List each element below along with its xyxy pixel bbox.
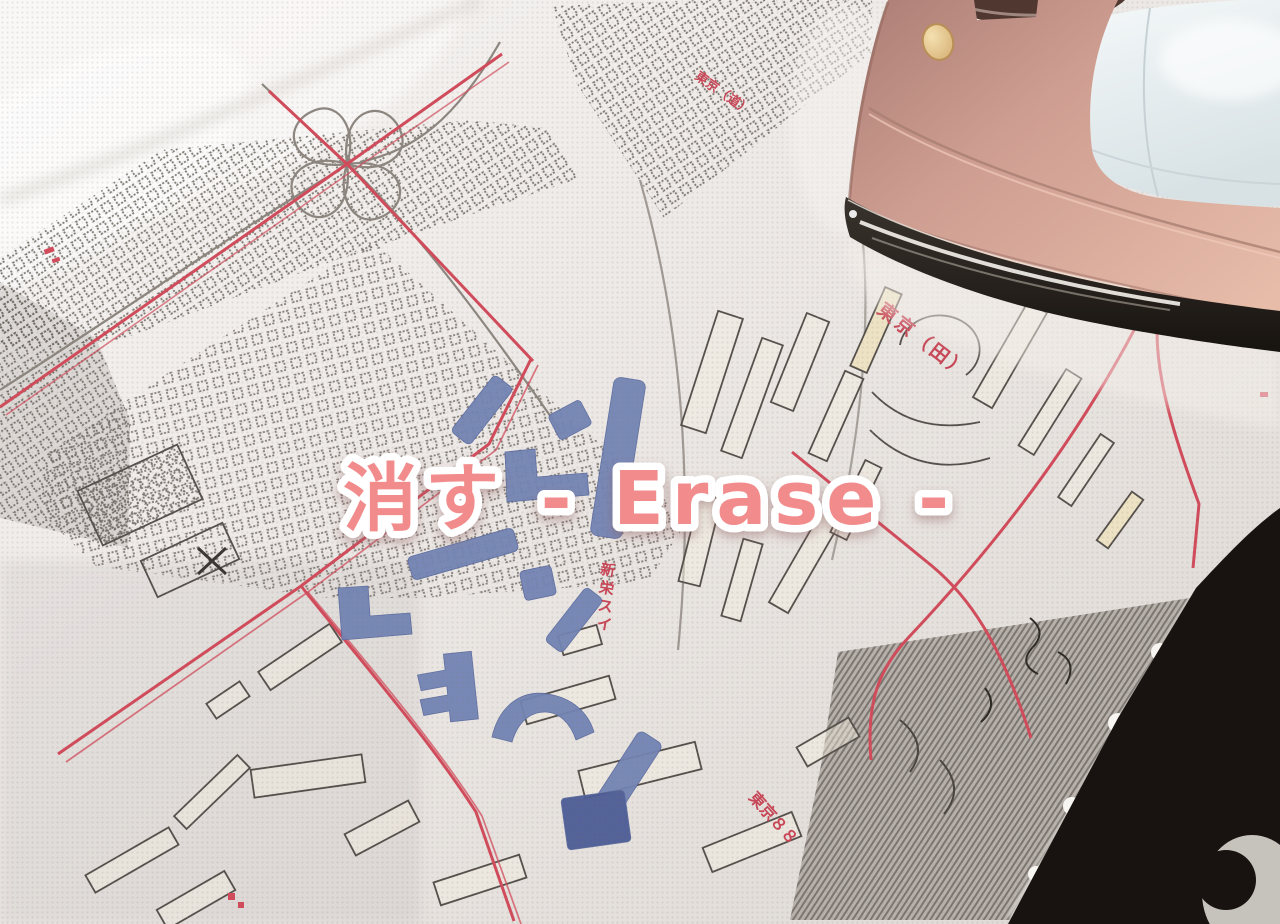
photo-scene: 東京（道） 東京（田） 新 栄 ス イ 東京８８ bbox=[0, 0, 1280, 924]
overlay-title: 消す - Erase - bbox=[343, 456, 957, 542]
